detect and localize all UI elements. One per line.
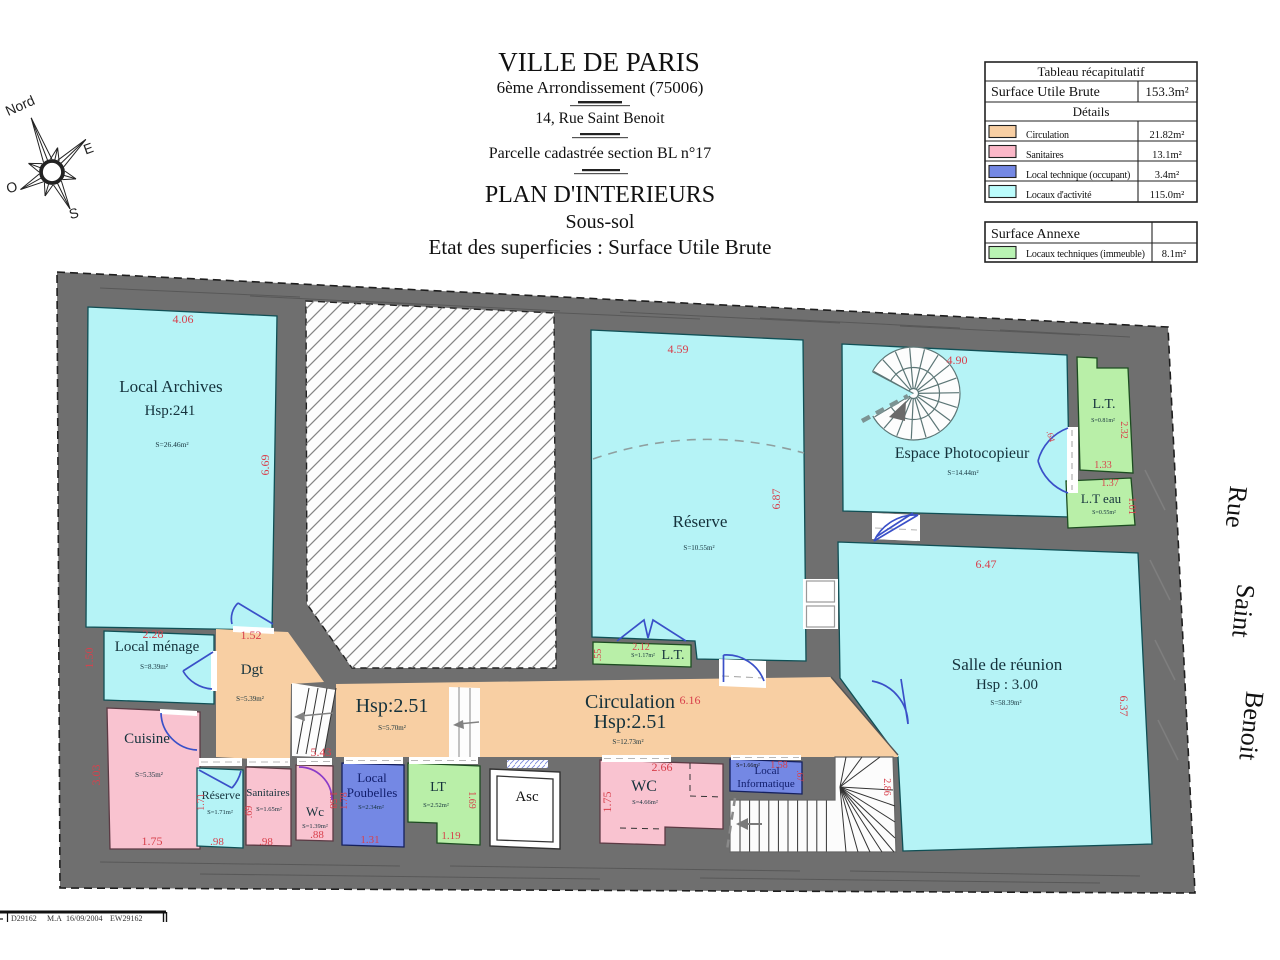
svg-text:Parcelle cadastrée section BL: Parcelle cadastrée section BL n°17 bbox=[489, 145, 712, 162]
svg-text:Sanitaires: Sanitaires bbox=[246, 787, 289, 799]
svg-text:3.03: 3.03 bbox=[89, 765, 103, 786]
svg-text:1.50: 1.50 bbox=[82, 648, 96, 669]
svg-text:Local Archives: Local Archives bbox=[119, 377, 222, 396]
svg-text:2.86: 2.86 bbox=[881, 778, 892, 796]
svg-text:1.78: 1.78 bbox=[339, 792, 350, 810]
svg-text:Informatique: Informatique bbox=[737, 778, 795, 790]
svg-text:Etat des superficies : Surface: Etat des superficies : Surface Utile Bru… bbox=[429, 235, 772, 259]
svg-text:Local: Local bbox=[357, 770, 387, 785]
svg-text:1.75: 1.75 bbox=[600, 792, 614, 813]
svg-text:3.4m²: 3.4m² bbox=[1155, 170, 1179, 181]
svg-text:1.58: 1.58 bbox=[770, 760, 788, 771]
svg-text:S=26.46m²: S=26.46m² bbox=[155, 440, 189, 449]
svg-text:L.T.: L.T. bbox=[1092, 397, 1115, 412]
svg-text:Cuisine: Cuisine bbox=[124, 731, 170, 747]
svg-text:4.90: 4.90 bbox=[947, 353, 968, 367]
svg-text:2.32: 2.32 bbox=[1118, 421, 1129, 439]
svg-text:Locaux d'activité: Locaux d'activité bbox=[1026, 190, 1092, 201]
svg-text:Circulation: Circulation bbox=[585, 691, 675, 713]
svg-text:6.87: 6.87 bbox=[769, 489, 783, 510]
svg-text:2.66: 2.66 bbox=[652, 760, 673, 774]
svg-text:D29162: D29162 bbox=[11, 914, 37, 923]
svg-text:Surface Annexe: Surface Annexe bbox=[991, 227, 1080, 242]
svg-text:Sanitaires: Sanitaires bbox=[1026, 150, 1064, 161]
svg-text:S=1.71m²: S=1.71m² bbox=[207, 809, 233, 816]
svg-text:S=5.70m²: S=5.70m² bbox=[378, 724, 406, 732]
svg-text:Dgt: Dgt bbox=[241, 662, 264, 678]
svg-text:VILLE DE PARIS: VILLE DE PARIS bbox=[498, 47, 700, 77]
svg-text:8.1m²: 8.1m² bbox=[1162, 249, 1186, 260]
svg-text:1.37: 1.37 bbox=[1101, 478, 1119, 489]
svg-text:Surface Utile Brute: Surface Utile Brute bbox=[991, 85, 1100, 100]
svg-text:6.37: 6.37 bbox=[1117, 696, 1131, 717]
svg-text:Poubelles: Poubelles bbox=[347, 785, 398, 800]
svg-text:1.01: 1.01 bbox=[1126, 497, 1137, 515]
svg-text:.88: .88 bbox=[310, 829, 324, 841]
svg-text:EW29162: EW29162 bbox=[110, 914, 142, 923]
svg-text:S=14.44m²: S=14.44m² bbox=[947, 469, 978, 477]
svg-text:.67: .67 bbox=[795, 770, 805, 782]
svg-text:S=10.55m²: S=10.55m² bbox=[683, 544, 714, 552]
svg-text:LT: LT bbox=[430, 780, 446, 795]
svg-text:1.69: 1.69 bbox=[466, 791, 477, 809]
svg-text:1.19: 1.19 bbox=[441, 830, 461, 842]
svg-text:S=1.66m²: S=1.66m² bbox=[736, 763, 760, 769]
svg-text:Espace Photocopieur: Espace Photocopieur bbox=[895, 445, 1030, 462]
svg-text:S=58.39m²: S=58.39m² bbox=[990, 699, 1021, 707]
svg-text:S=5.35m²: S=5.35m² bbox=[135, 771, 163, 779]
svg-text:PLAN D'INTERIEURS: PLAN D'INTERIEURS bbox=[485, 182, 715, 208]
svg-text:.55: .55 bbox=[593, 649, 604, 662]
svg-text:Rue: Rue bbox=[1220, 485, 1253, 530]
svg-text:5.43: 5.43 bbox=[311, 745, 332, 759]
svg-text:S=1.65m²: S=1.65m² bbox=[256, 806, 282, 813]
svg-text:1.33: 1.33 bbox=[1094, 460, 1112, 471]
svg-text:Saint: Saint bbox=[1226, 583, 1261, 640]
svg-text:13.1m²: 13.1m² bbox=[1152, 150, 1182, 161]
svg-text:Tableau récapitulatif: Tableau récapitulatif bbox=[1037, 64, 1145, 79]
svg-text:115.0m²: 115.0m² bbox=[1150, 190, 1185, 201]
svg-text:Local ménage: Local ménage bbox=[115, 639, 200, 655]
svg-text:S=12.73m²: S=12.73m² bbox=[612, 738, 643, 746]
svg-text:6.16: 6.16 bbox=[680, 693, 701, 707]
svg-text:Asc: Asc bbox=[515, 789, 539, 805]
svg-text:S=1.17m²: S=1.17m² bbox=[631, 653, 655, 659]
svg-text:S=5.39m²: S=5.39m² bbox=[236, 695, 264, 703]
svg-text:Réserve: Réserve bbox=[673, 512, 728, 531]
svg-text:14, Rue Saint Benoit: 14, Rue Saint Benoit bbox=[535, 110, 665, 127]
svg-text:WC: WC bbox=[631, 778, 657, 795]
svg-text:21.82m²: 21.82m² bbox=[1150, 130, 1185, 141]
svg-text:S=4.66m²: S=4.66m² bbox=[632, 799, 658, 806]
svg-text:Locaux techniques (immeuble): Locaux techniques (immeuble) bbox=[1026, 249, 1145, 260]
svg-text:Hsp : 3.00: Hsp : 3.00 bbox=[976, 677, 1038, 693]
svg-text:Circulation: Circulation bbox=[1026, 130, 1069, 141]
svg-text:Local technique (occupant): Local technique (occupant) bbox=[1026, 170, 1130, 181]
svg-text:.69: .69 bbox=[244, 806, 255, 819]
svg-text:2.12: 2.12 bbox=[632, 642, 650, 653]
svg-text:4.06: 4.06 bbox=[173, 312, 194, 326]
svg-text:Détails: Détails bbox=[1073, 104, 1110, 119]
svg-text:4.59: 4.59 bbox=[668, 342, 689, 356]
svg-text:S=8.39m²: S=8.39m² bbox=[140, 663, 168, 671]
svg-text:S=2.34m²: S=2.34m² bbox=[358, 804, 384, 811]
svg-text:153.3m²: 153.3m² bbox=[1145, 84, 1188, 99]
svg-text:6ème Arrondissement (75006): 6ème Arrondissement (75006) bbox=[497, 78, 704, 97]
svg-text:Hsp:2.51: Hsp:2.51 bbox=[594, 711, 667, 733]
svg-text:Réserve: Réserve bbox=[202, 788, 241, 802]
svg-text:1.71: 1.71 bbox=[196, 793, 207, 811]
svg-text:S=0.81m²: S=0.81m² bbox=[1091, 418, 1115, 424]
svg-text:S=2.52m²: S=2.52m² bbox=[423, 802, 449, 809]
svg-text:6.69: 6.69 bbox=[258, 455, 272, 476]
svg-text:S=0.55m²: S=0.55m² bbox=[1092, 510, 1116, 516]
svg-text:.98: .98 bbox=[259, 836, 273, 848]
svg-text:Hsp:2.51: Hsp:2.51 bbox=[356, 695, 429, 717]
svg-text:M.A: M.A bbox=[47, 914, 62, 923]
svg-text:16/09/2004: 16/09/2004 bbox=[66, 914, 102, 923]
svg-text:1.58: 1.58 bbox=[327, 791, 338, 809]
svg-text:Sous-sol: Sous-sol bbox=[566, 211, 635, 233]
svg-text:6.47: 6.47 bbox=[976, 557, 997, 571]
svg-text:L.T eau: L.T eau bbox=[1081, 491, 1122, 506]
svg-text:Wc: Wc bbox=[306, 804, 324, 819]
svg-text:1.52: 1.52 bbox=[241, 628, 262, 642]
svg-text:L.T.: L.T. bbox=[661, 648, 684, 663]
svg-text:Hsp:241: Hsp:241 bbox=[145, 403, 196, 419]
svg-text:Salle de réunion: Salle de réunion bbox=[952, 655, 1063, 674]
svg-text:.98: .98 bbox=[210, 836, 224, 848]
svg-text:1.31: 1.31 bbox=[360, 834, 379, 846]
svg-text:1.75: 1.75 bbox=[142, 834, 163, 848]
